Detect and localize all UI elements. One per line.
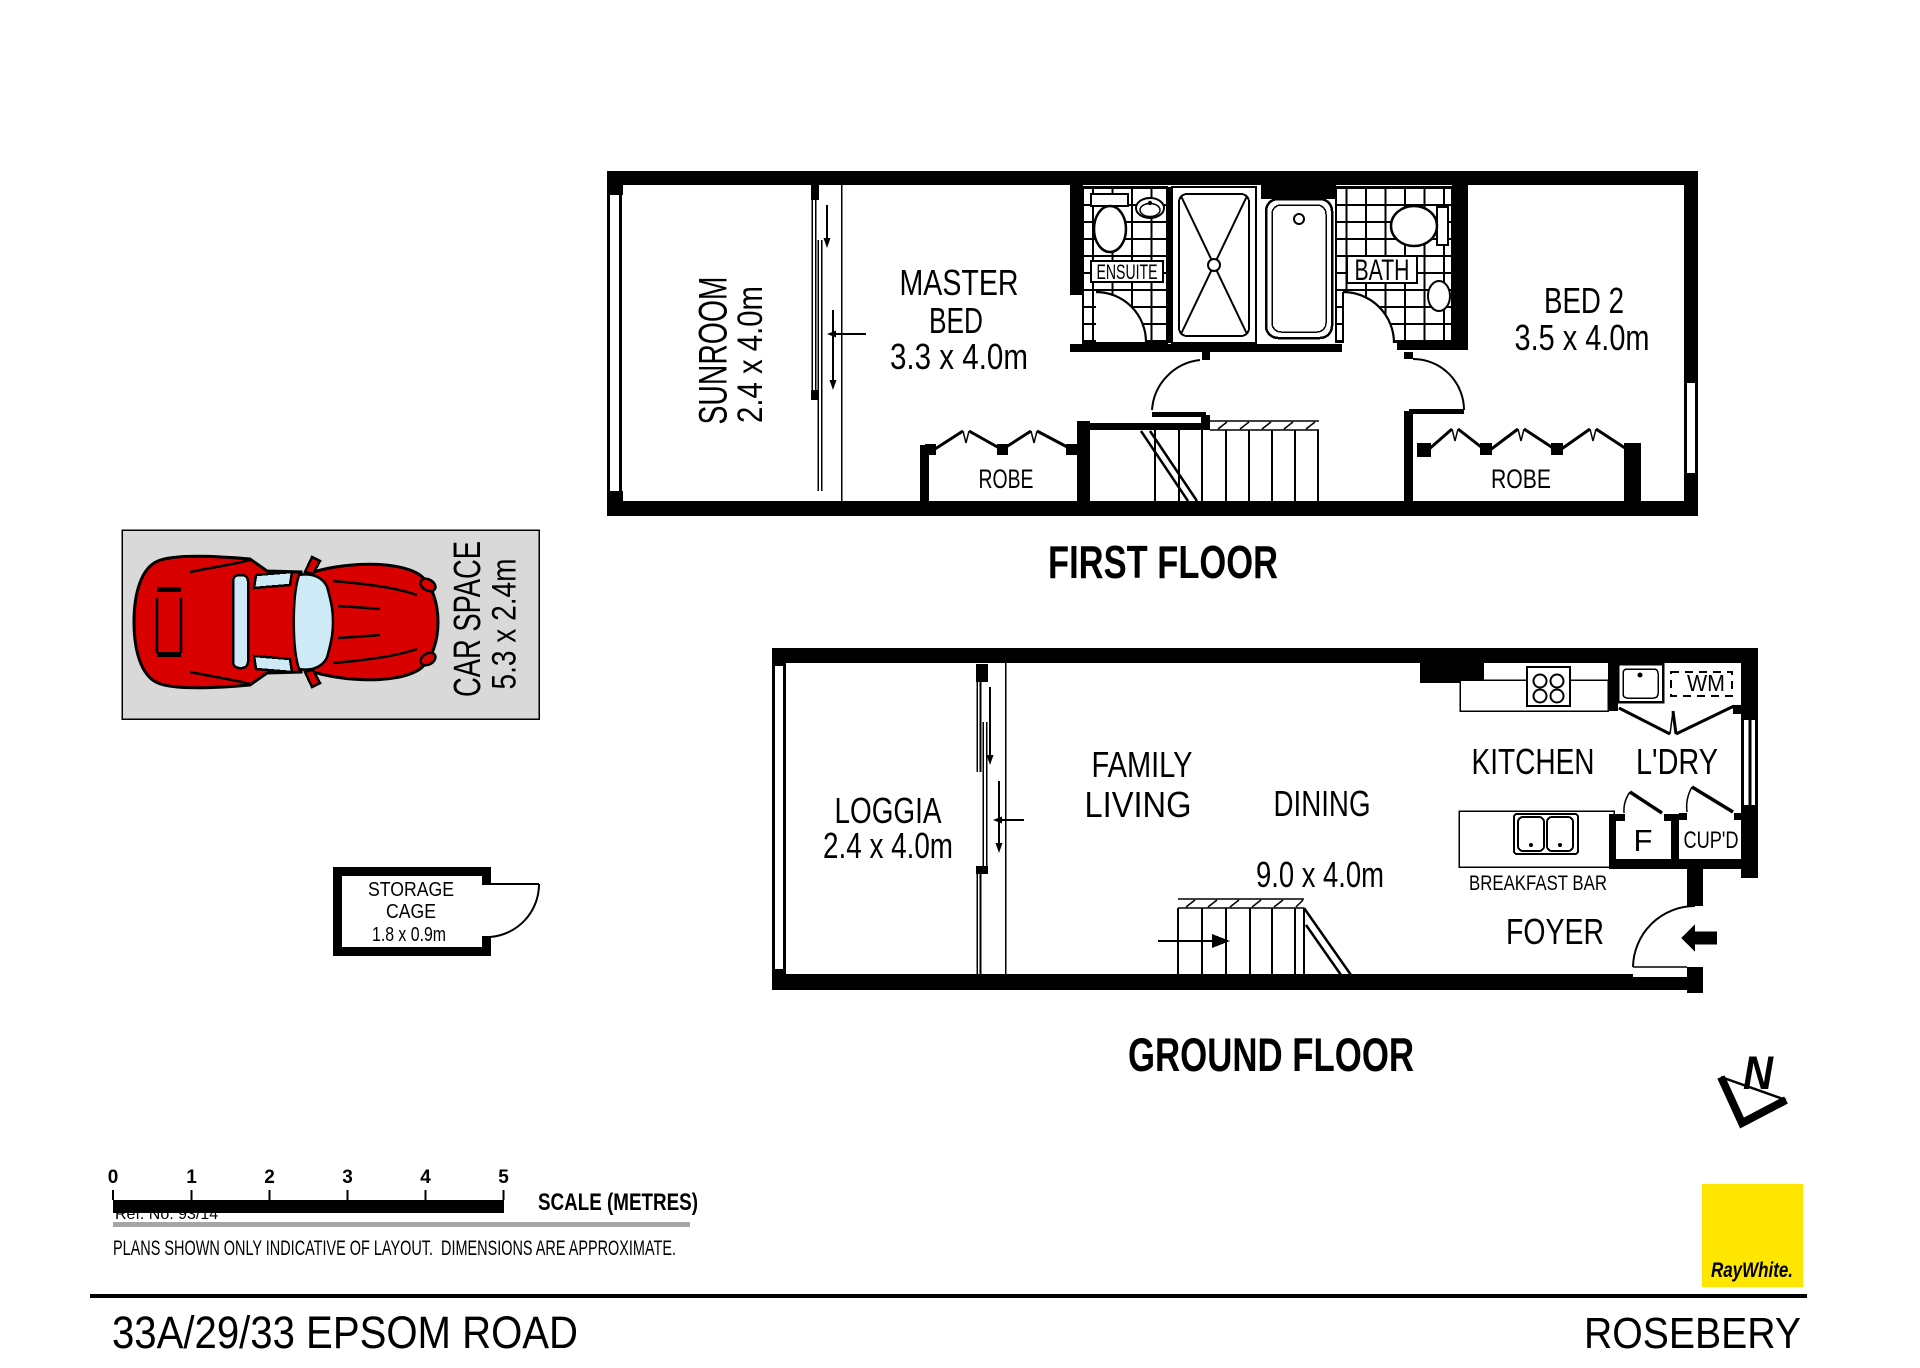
svg-text:CAGE: CAGE bbox=[386, 901, 436, 923]
svg-text:0: 0 bbox=[108, 1167, 119, 1188]
svg-text:DINING: DINING bbox=[1274, 783, 1371, 824]
svg-text:ROBE: ROBE bbox=[1491, 464, 1551, 494]
svg-text:ENSUITE: ENSUITE bbox=[1097, 261, 1158, 284]
svg-text:2.4 x 4.0m: 2.4 x 4.0m bbox=[823, 825, 953, 866]
svg-text:BREAKFAST BAR: BREAKFAST BAR bbox=[1469, 872, 1607, 895]
svg-text:33A/29/33 EPSOM ROAD: 33A/29/33 EPSOM ROAD bbox=[112, 1307, 578, 1358]
svg-text:2: 2 bbox=[264, 1167, 275, 1188]
svg-text:SCALE (METRES): SCALE (METRES) bbox=[538, 1189, 698, 1216]
svg-text:KITCHEN: KITCHEN bbox=[1472, 741, 1595, 782]
svg-text:FAMILY: FAMILY bbox=[1092, 744, 1193, 785]
svg-text:5.3 x 2.4m: 5.3 x 2.4m bbox=[486, 559, 524, 690]
svg-text:3.5 x 4.0m: 3.5 x 4.0m bbox=[1515, 317, 1650, 358]
svg-text:4: 4 bbox=[420, 1167, 431, 1188]
svg-text:WM: WM bbox=[1687, 670, 1725, 696]
svg-text:STORAGE: STORAGE bbox=[368, 879, 454, 901]
svg-text:F: F bbox=[1634, 823, 1653, 858]
svg-text:BATH: BATH bbox=[1355, 254, 1410, 287]
svg-text:9.0 x 4.0m: 9.0 x 4.0m bbox=[1256, 854, 1384, 895]
svg-text:ROSEBERY: ROSEBERY bbox=[1584, 1309, 1801, 1358]
svg-text:L'DRY: L'DRY bbox=[1636, 741, 1718, 782]
svg-text:LIVING: LIVING bbox=[1085, 784, 1192, 825]
svg-text:5: 5 bbox=[498, 1167, 509, 1188]
svg-text:2.4 x 4.0m: 2.4 x 4.0m bbox=[731, 286, 770, 423]
svg-text:CAR SPACE: CAR SPACE bbox=[447, 541, 489, 697]
svg-text:3.3 x 4.0m: 3.3 x 4.0m bbox=[890, 336, 1028, 377]
svg-text:BED: BED bbox=[929, 300, 983, 341]
svg-text:SUNROOM: SUNROOM bbox=[692, 277, 736, 425]
svg-text:RayWhite.: RayWhite. bbox=[1711, 1259, 1793, 1282]
svg-text:3: 3 bbox=[342, 1167, 353, 1188]
svg-text:FOYER: FOYER bbox=[1506, 911, 1604, 952]
svg-text:FIRST FLOOR: FIRST FLOOR bbox=[1048, 536, 1278, 588]
svg-text:BED 2: BED 2 bbox=[1544, 280, 1624, 321]
svg-text:N: N bbox=[1743, 1046, 1774, 1099]
svg-text:1: 1 bbox=[186, 1167, 197, 1188]
svg-text:ROBE: ROBE bbox=[979, 464, 1034, 494]
svg-text:GROUND FLOOR: GROUND FLOOR bbox=[1128, 1028, 1414, 1081]
svg-text:CUP'D: CUP'D bbox=[1684, 827, 1739, 854]
svg-text:PLANS SHOWN ONLY INDICATIVE OF: PLANS SHOWN ONLY INDICATIVE OF LAYOUT. D… bbox=[113, 1237, 676, 1260]
svg-text:1.8 x 0.9m: 1.8 x 0.9m bbox=[372, 924, 446, 946]
svg-text:MASTER: MASTER bbox=[900, 262, 1019, 303]
